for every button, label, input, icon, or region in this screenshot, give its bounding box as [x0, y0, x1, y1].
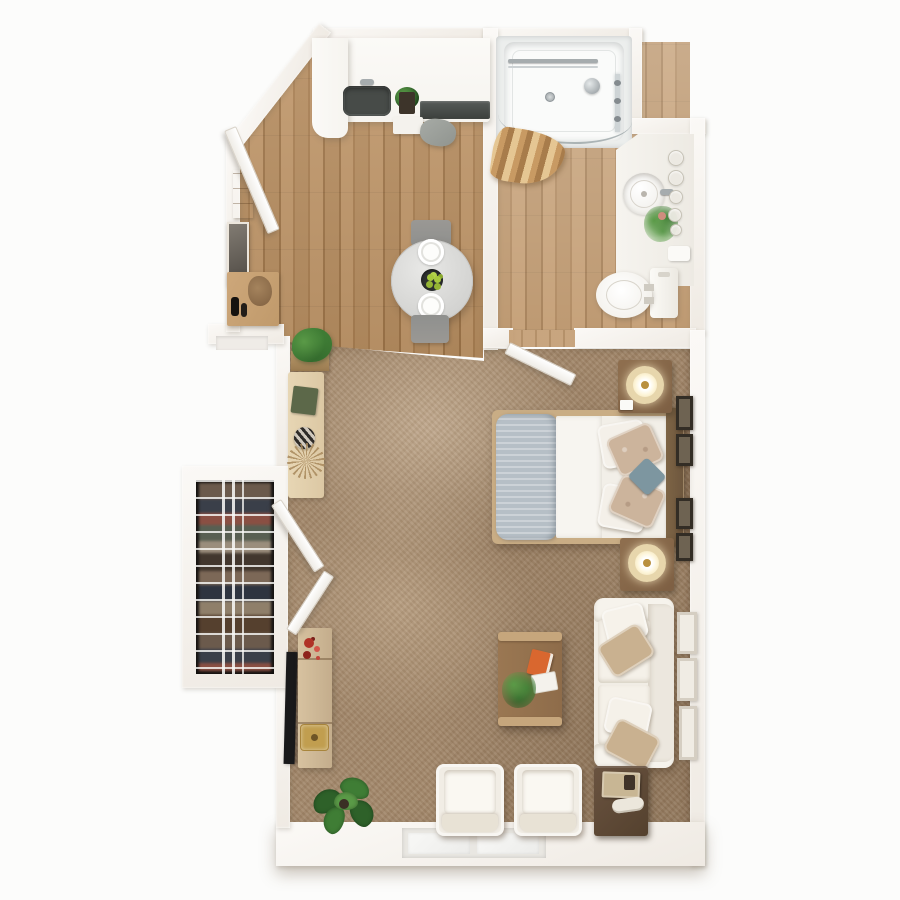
armchair-seat	[444, 770, 496, 814]
wall-frame-dark	[676, 498, 693, 529]
glass-clamp	[614, 80, 621, 86]
lamp-finial	[641, 381, 649, 389]
console-decor	[248, 276, 272, 306]
toiletries-jar	[669, 190, 683, 204]
rattan-burst-decor	[287, 443, 325, 479]
lamp-finial	[643, 559, 651, 567]
toiletries-jar	[668, 150, 684, 166]
wall-frame-light	[677, 658, 697, 701]
wall-frame-dark	[676, 396, 693, 430]
wall-frame-light	[679, 706, 697, 760]
console-divider	[298, 658, 332, 660]
window-pane	[408, 833, 470, 854]
window-pane	[477, 833, 539, 854]
coffee-table-rail	[498, 717, 562, 726]
black-vase	[241, 303, 247, 317]
wall-bathroom-south-right	[574, 328, 696, 348]
toiletries-jar	[670, 224, 682, 236]
dishwasher-front	[393, 117, 423, 134]
wall-frame-dark	[676, 434, 693, 466]
towel-bar	[508, 59, 598, 63]
cooktop	[420, 101, 490, 119]
toilet-seat-hinge	[644, 284, 654, 304]
kitchen-sink	[343, 86, 391, 116]
red-flower-decor	[304, 638, 314, 648]
bench-book	[290, 386, 318, 416]
toiletries-jar	[668, 208, 682, 222]
wall-frame-dark	[676, 533, 693, 561]
kitchen-counter-left-arm	[312, 38, 348, 138]
corner-planter-leaves	[292, 328, 332, 362]
wall-frame-light	[677, 612, 697, 654]
armchair-back	[520, 814, 576, 832]
sink-drain	[641, 191, 647, 197]
toilet-bowl-rim	[606, 280, 642, 310]
plant-pot	[339, 799, 349, 809]
end-table-decor	[624, 775, 635, 790]
kitchen-faucet	[360, 79, 374, 85]
towel-bar-shadow	[508, 66, 598, 68]
closet-wire-shelves	[196, 480, 274, 674]
bed-folded-blanket	[496, 414, 558, 540]
flush-button	[658, 272, 670, 277]
armchair-seat	[522, 770, 574, 814]
coffee-table-rail	[498, 632, 562, 641]
tray-handle	[311, 734, 318, 741]
dinner-plate	[418, 239, 444, 265]
notepad	[620, 400, 633, 410]
armchair-back	[442, 814, 498, 832]
wall-niche	[216, 336, 268, 350]
bathroom-door-threshold	[509, 330, 575, 347]
floor-plan-render	[0, 0, 900, 900]
small-pink-flower	[658, 212, 666, 220]
closet-interior	[196, 480, 274, 674]
dining-chair-back	[409, 337, 451, 353]
kitchen-plant-pot	[399, 92, 415, 114]
green-fruit	[427, 274, 434, 281]
black-vase	[231, 297, 239, 316]
toiletries-jar	[668, 170, 684, 186]
toilet-paper-holder	[668, 246, 690, 261]
